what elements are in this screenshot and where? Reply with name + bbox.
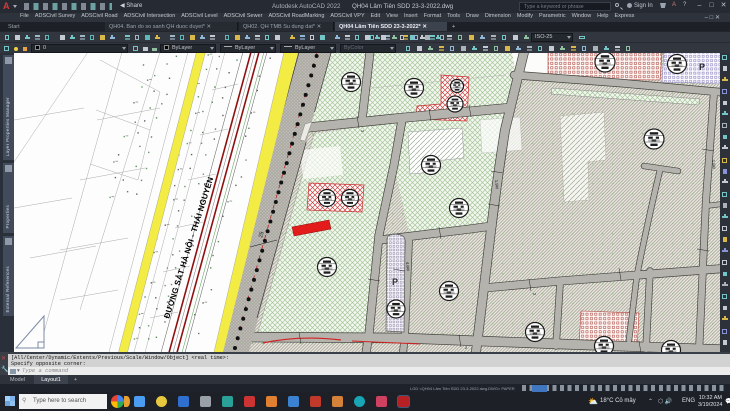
svg-text:P: P (392, 277, 398, 287)
svg-text:1.5M: 1.5M (494, 180, 500, 189)
svg-text:4.6M: 4.6M (405, 262, 411, 271)
svg-text:1.5M: 1.5M (711, 160, 717, 169)
svg-text:P: P (699, 62, 705, 72)
